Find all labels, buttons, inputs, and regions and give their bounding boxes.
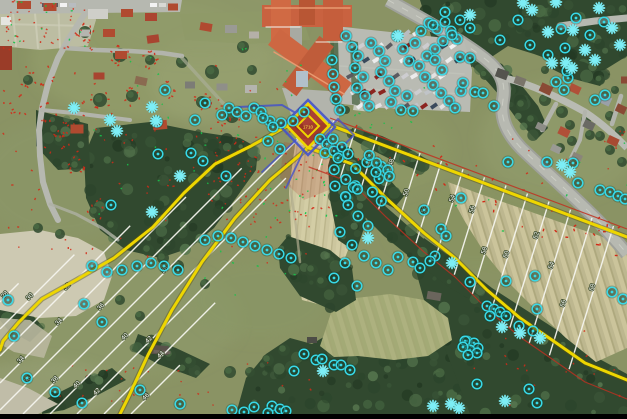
svg-text:1710: 1710: [303, 125, 314, 130]
